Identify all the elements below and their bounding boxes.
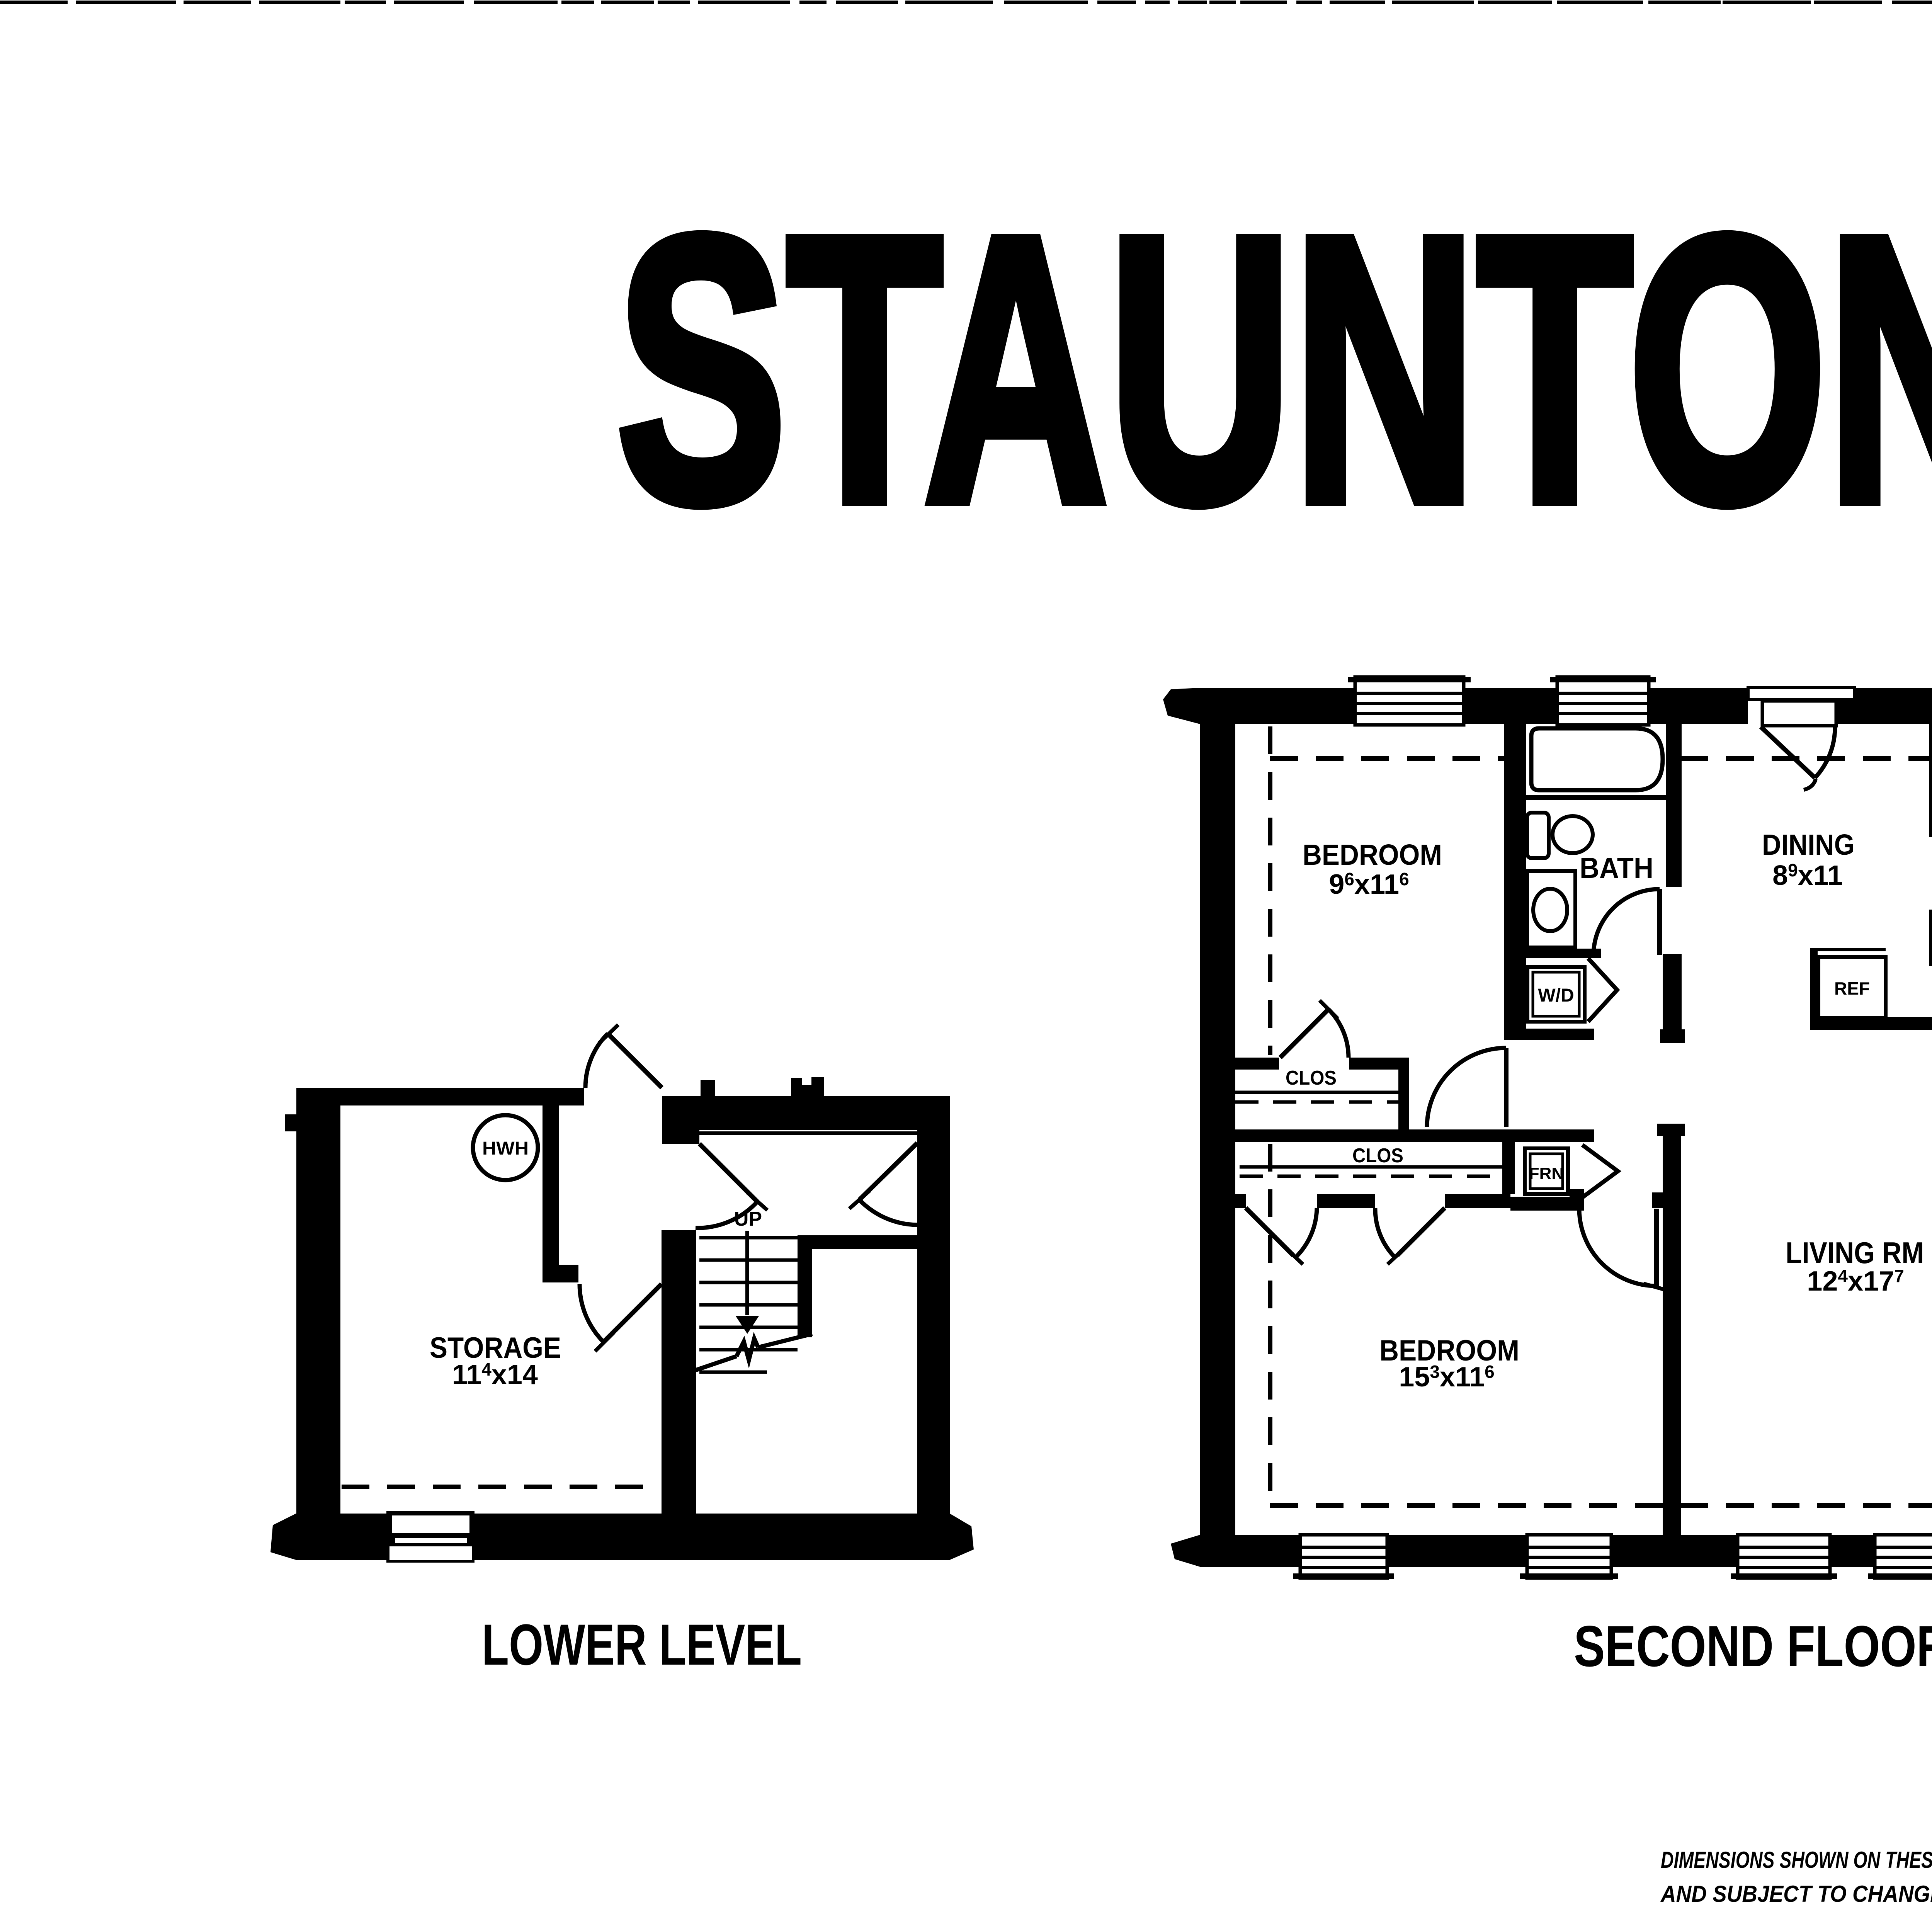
svg-text:LIVING RM: LIVING RM [1786, 1236, 1924, 1270]
svg-text:DIMENSIONS SHOWN ON THESE FLOO: DIMENSIONS SHOWN ON THESE FLOOR PLANS AR… [1661, 1847, 1932, 1873]
svg-text:124x177: 124x177 [1807, 1266, 1904, 1297]
svg-text:114x14: 114x14 [452, 1359, 538, 1390]
svg-text:SECOND FLOOR: SECOND FLOOR [1574, 1614, 1932, 1679]
svg-text:CLOS: CLOS [1352, 1145, 1403, 1167]
svg-text:STAUNTON: STAUNTON [616, 158, 1932, 581]
svg-text:UP: UP [734, 1208, 762, 1230]
svg-text:HWH: HWH [482, 1138, 529, 1159]
svg-text:FRN: FRN [1529, 1164, 1564, 1183]
svg-text:BEDROOM: BEDROOM [1303, 838, 1442, 871]
svg-text:LOWER LEVEL: LOWER LEVEL [482, 1612, 802, 1677]
svg-text:96x116: 96x116 [1329, 869, 1409, 900]
svg-text:89x11: 89x11 [1772, 860, 1843, 891]
svg-text:DINING: DINING [1762, 828, 1855, 861]
svg-text:BATH: BATH [1580, 852, 1653, 884]
svg-text:CLOS: CLOS [1286, 1067, 1337, 1089]
svg-text:W/D: W/D [1538, 985, 1574, 1006]
svg-text:REF: REF [1834, 978, 1870, 998]
svg-text:153x116: 153x116 [1399, 1362, 1494, 1393]
svg-text:AND SUBJECT TO CHANGE.: AND SUBJECT TO CHANGE. [1660, 1881, 1932, 1907]
